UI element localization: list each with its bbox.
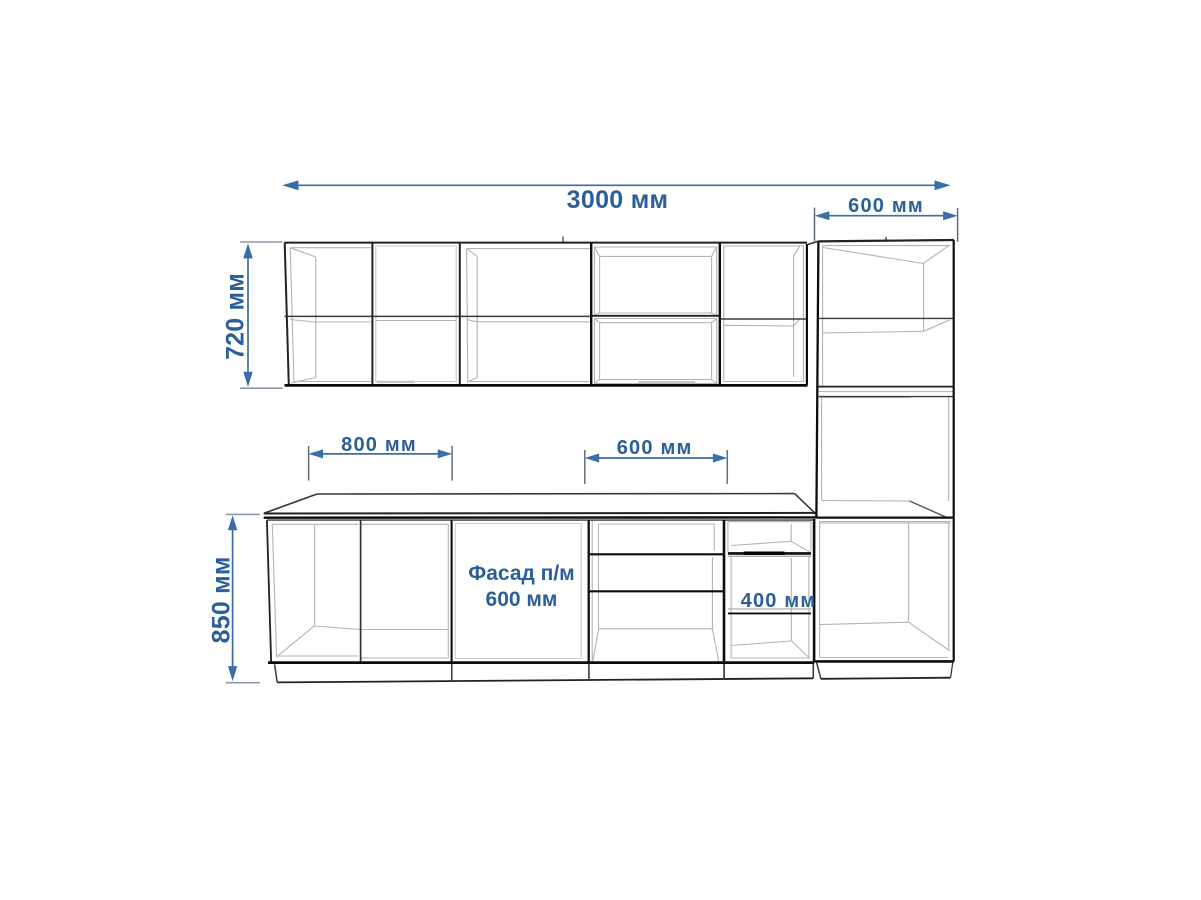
svg-text:3000 мм: 3000 мм (567, 186, 669, 214)
svg-text:400 мм: 400 мм (741, 590, 817, 612)
svg-text:800 мм: 800 мм (341, 434, 417, 456)
svg-text:850 мм: 850 мм (208, 556, 236, 643)
svg-text:600 мм: 600 мм (486, 588, 558, 611)
svg-text:600 мм: 600 мм (848, 195, 924, 217)
svg-text:Фасад п/м: Фасад п/м (468, 562, 574, 585)
svg-text:720 мм: 720 мм (221, 273, 249, 360)
svg-text:600 мм: 600 мм (617, 437, 693, 459)
